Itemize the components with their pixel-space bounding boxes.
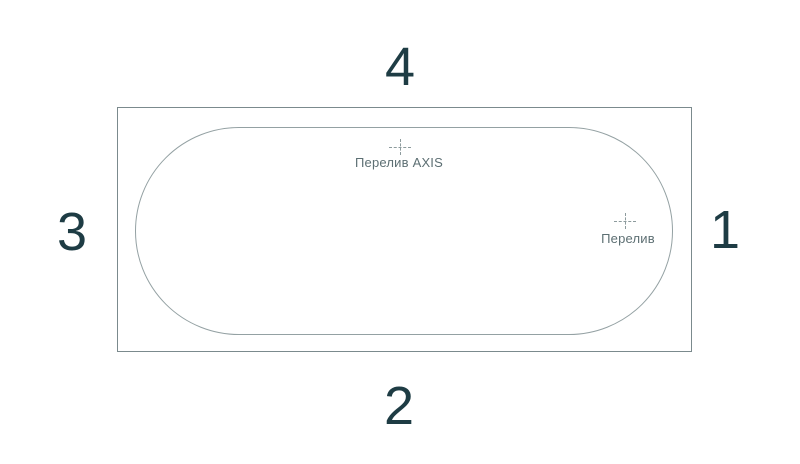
center-mark-icon bbox=[389, 139, 411, 155]
bathtub-installation-diagram: 4 1 2 3 Перелив AXIS Перелив bbox=[0, 0, 800, 464]
side-label-right: 1 bbox=[710, 203, 740, 257]
center-mark-icon bbox=[614, 213, 636, 229]
side-label-bottom: 2 bbox=[384, 379, 414, 433]
center-mark-vertical bbox=[400, 139, 401, 155]
overflow-axis-label: Перелив AXIS bbox=[355, 155, 443, 170]
center-mark-vertical bbox=[625, 213, 626, 229]
overflow-label: Перелив bbox=[601, 231, 655, 246]
side-label-top: 4 bbox=[385, 40, 415, 94]
side-label-left: 3 bbox=[57, 205, 87, 259]
